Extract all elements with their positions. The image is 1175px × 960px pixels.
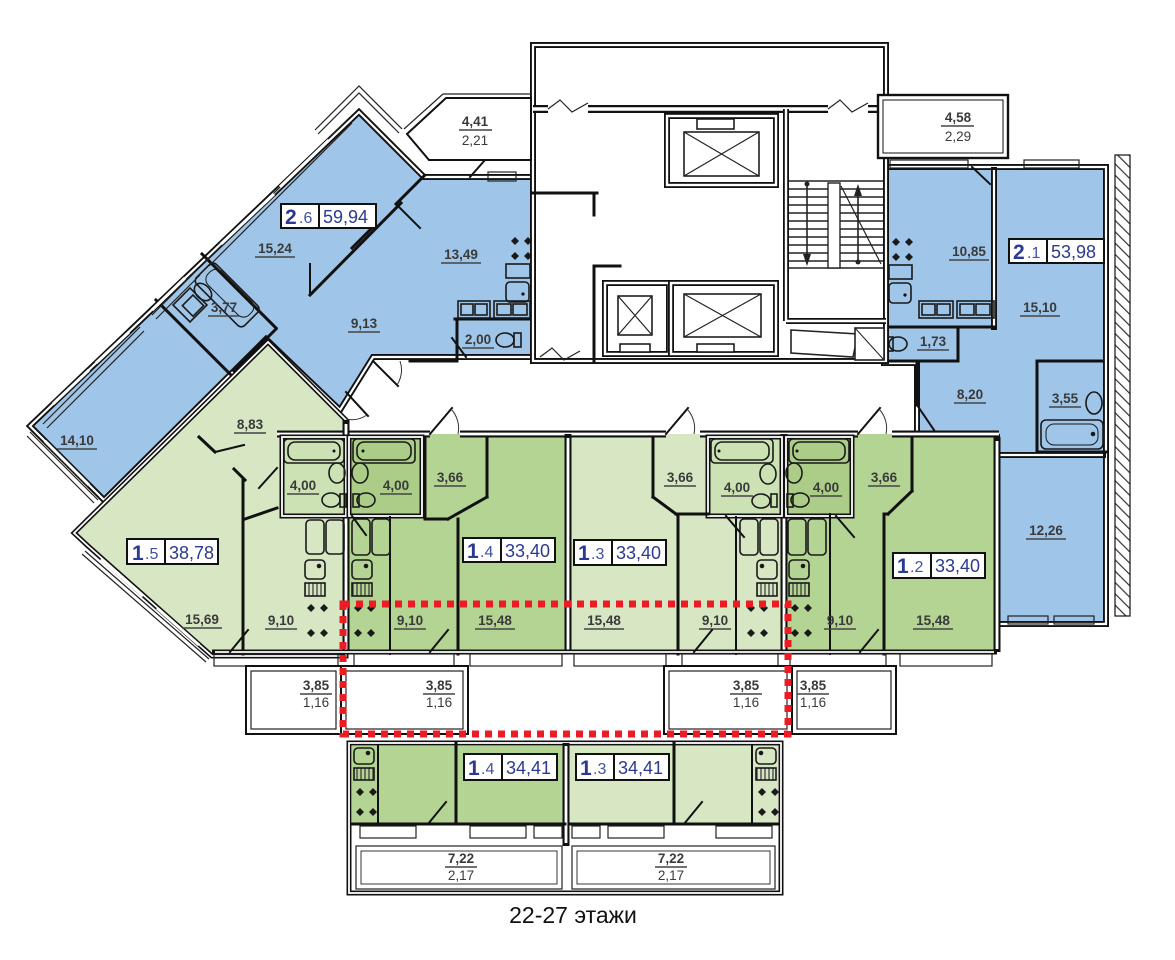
svg-text:59,94: 59,94 [323,207,368,227]
svg-text:4,41: 4,41 [462,114,489,129]
svg-text:3,85: 3,85 [303,678,330,693]
svg-text:33,40: 33,40 [505,541,550,561]
svg-text:4,00: 4,00 [383,478,409,493]
svg-text:15,48: 15,48 [916,613,950,628]
svg-text:8,20: 8,20 [957,387,983,402]
svg-text:2,00: 2,00 [465,332,491,347]
svg-text:1,73: 1,73 [920,334,947,349]
svg-text:1: 1 [578,542,590,565]
svg-text:7,22: 7,22 [658,851,684,866]
svg-text:.4: .4 [480,544,493,561]
svg-text:10,85: 10,85 [952,244,986,259]
svg-text:1: 1 [468,757,480,780]
svg-text:4,00: 4,00 [290,478,316,493]
svg-text:3,77: 3,77 [211,300,237,315]
svg-text:15,48: 15,48 [478,613,512,628]
svg-text:.3: .3 [593,761,606,778]
svg-text:38,78: 38,78 [169,543,214,563]
svg-text:15,24: 15,24 [258,241,292,256]
svg-text:9,10: 9,10 [268,613,294,628]
svg-text:1: 1 [132,542,144,565]
svg-text:4,00: 4,00 [813,480,839,495]
svg-text:15,10: 15,10 [1023,300,1057,315]
svg-text:3,85: 3,85 [426,678,453,693]
svg-text:2,17: 2,17 [448,868,474,883]
svg-text:1: 1 [897,555,909,578]
svg-text:4,58: 4,58 [945,110,972,125]
svg-text:1: 1 [580,757,592,780]
svg-text:3,85: 3,85 [733,678,760,693]
svg-text:9,10: 9,10 [827,613,853,628]
svg-text:2,29: 2,29 [945,129,971,144]
svg-text:2,21: 2,21 [462,133,488,148]
svg-text:22-27 этажи: 22-27 этажи [509,902,637,928]
svg-text:2,17: 2,17 [658,868,684,883]
svg-text:.2: .2 [910,559,923,576]
svg-text:9,13: 9,13 [351,316,378,331]
svg-text:.3: .3 [591,546,604,563]
svg-text:3,66: 3,66 [667,470,694,485]
svg-text:12,26: 12,26 [1029,523,1063,538]
svg-text:9,10: 9,10 [397,613,423,628]
svg-text:34,41: 34,41 [506,758,551,778]
svg-text:15,69: 15,69 [185,612,219,627]
svg-text:3,85: 3,85 [800,678,827,693]
svg-text:33,40: 33,40 [616,543,661,563]
svg-text:1,16: 1,16 [426,695,452,710]
svg-text:.4: .4 [481,761,494,778]
svg-text:1,16: 1,16 [733,695,759,710]
svg-text:3,55: 3,55 [1052,391,1079,406]
svg-text:7,22: 7,22 [448,851,474,866]
svg-text:.5: .5 [145,546,158,563]
svg-text:4,00: 4,00 [724,480,750,495]
svg-text:13,49: 13,49 [444,247,478,262]
svg-text:33,40: 33,40 [935,556,980,576]
svg-text:1,16: 1,16 [303,695,329,710]
svg-text:1,16: 1,16 [800,695,826,710]
svg-text:14,10: 14,10 [60,433,94,448]
svg-text:1: 1 [467,540,479,563]
svg-text:3,66: 3,66 [437,470,464,485]
svg-text:2: 2 [1013,241,1025,264]
svg-text:.1: .1 [1027,245,1040,262]
svg-text:8,83: 8,83 [237,417,264,432]
svg-text:2: 2 [285,206,297,229]
svg-text:34,41: 34,41 [618,758,663,778]
svg-text:53,98: 53,98 [1051,242,1096,262]
svg-text:9,10: 9,10 [702,613,728,628]
svg-text:15,48: 15,48 [587,613,621,628]
svg-text:3,66: 3,66 [871,470,898,485]
svg-text:.6: .6 [299,210,312,227]
